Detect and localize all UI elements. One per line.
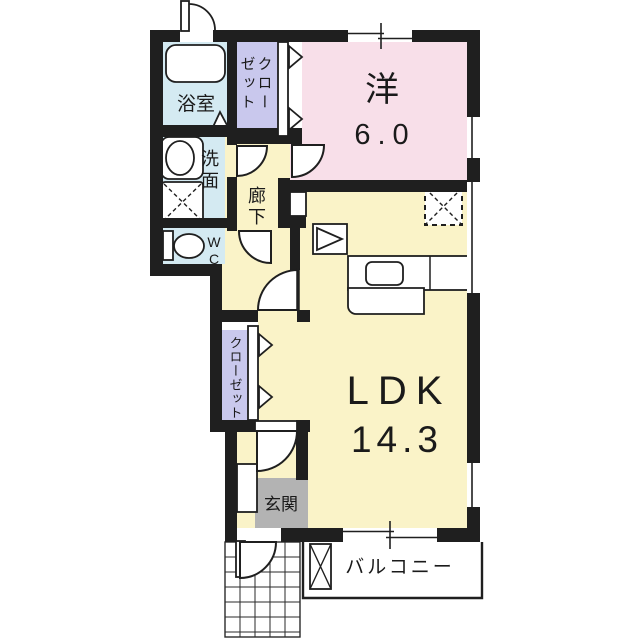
kitchen-counter-ext-icon: [348, 288, 424, 314]
window-western-top: [348, 30, 412, 42]
sink-bowl-icon: [166, 141, 194, 175]
bathtub-icon: [166, 45, 225, 82]
shoe-cabinet-icon: [237, 464, 257, 512]
kitchen-sink-icon: [366, 262, 403, 285]
door-leaf-entrance-hall: [255, 421, 297, 431]
label-closet-upper: クロー: [256, 56, 273, 113]
bath-window-door-leaf: [181, 1, 189, 31]
floor-plan: 洋 6.0 LDK 14.3 浴室 洗面 WC 廊下 クロー ゼット クローゼッ…: [0, 0, 640, 640]
label-western-size: 6.0: [354, 119, 415, 151]
label-balcony: バルコニー: [345, 557, 455, 578]
window-western-right: [467, 117, 480, 158]
wall-niche: [290, 192, 306, 216]
toilet-tank-icon: [163, 231, 173, 260]
closet-upper-door-panel: [278, 42, 288, 136]
bath-window-door-arc: [189, 4, 215, 30]
label-wc: WC: [206, 234, 222, 268]
label-western: 洋: [365, 71, 399, 109]
floor-plan-drawing: 洋 6.0 LDK 14.3 浴室 洗面 WC 廊下 クロー ゼット クローゼッ…: [0, 0, 640, 640]
label-hallway: 廊下: [246, 186, 266, 228]
label-bathroom: 浴室: [177, 93, 215, 115]
window-kitchen-right: [467, 182, 480, 293]
label-washroom: 洗面: [199, 149, 219, 193]
label-closet-upper: ゼット: [239, 56, 256, 113]
label-closet-lower: クローゼット: [228, 336, 243, 420]
closet-lower-door-panel: [248, 326, 258, 420]
label-entrance: 玄関: [264, 495, 298, 514]
toilet-bowl-icon: [174, 234, 204, 258]
window-ldk-right: [467, 463, 480, 507]
label-ldk-size: 14.3: [351, 419, 443, 460]
label-ldk: LDK: [347, 369, 452, 413]
